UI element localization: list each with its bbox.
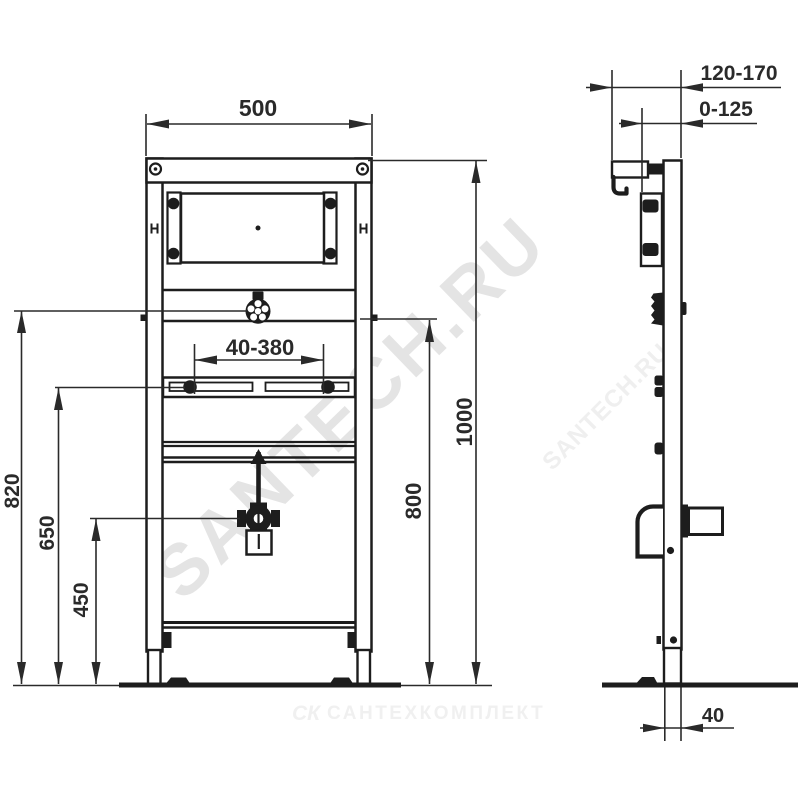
plate-bolt	[325, 198, 337, 210]
dim-label-adjust-range: 0-125	[699, 98, 753, 121]
bracket-bolt	[643, 200, 659, 213]
side-floor-line	[602, 683, 798, 688]
frame-top-bar	[147, 159, 372, 183]
dim-label-left-top-height: 820	[1, 473, 24, 508]
bottom-crossbar	[163, 623, 355, 628]
dim-label-slot-height: 650	[36, 515, 59, 550]
frame-feet	[13, 632, 492, 688]
profile-bolt	[655, 376, 664, 386]
dim-label-width: 500	[239, 95, 277, 121]
foot-clamp-right	[348, 632, 356, 648]
dim-label-tap-height: 800	[401, 483, 426, 520]
slot-right	[266, 383, 349, 392]
slot-rail	[163, 378, 355, 398]
plate-bolt	[168, 198, 180, 210]
dim-label-drain-height: 450	[70, 582, 93, 617]
washbasin-frame-drawing: SANTECH.RU SANTECH.RU	[0, 0, 800, 800]
footer-logo: СК	[292, 702, 322, 725]
tap-rail	[141, 290, 378, 324]
dim-label-foot-depth: 40	[702, 705, 724, 727]
mounting-plate	[168, 193, 337, 264]
profile-channel	[664, 161, 682, 650]
serrated-clip	[651, 293, 663, 326]
side-view	[602, 161, 798, 688]
plate-bolt	[168, 248, 180, 260]
side-foot	[602, 636, 798, 688]
washbasin-hook-bracket	[612, 162, 664, 194]
base-plate	[119, 683, 401, 688]
foot-right	[358, 650, 371, 684]
fixing-bracket-plate	[641, 194, 662, 267]
foot-clamp-left	[164, 632, 172, 648]
dim-foot-40: 40	[640, 688, 734, 742]
profile-bolt	[655, 443, 664, 455]
footer-company-name: САНТЕХКОМПЛЕКТ	[327, 703, 545, 724]
frame-right-rail	[356, 159, 372, 652]
profile-back-stud	[682, 302, 687, 315]
profile-bolt	[655, 387, 664, 397]
tap-valve-wheel	[246, 292, 271, 324]
plate-bolt	[325, 248, 337, 260]
watermark-diagonal-small: SANTECH.RU	[537, 338, 674, 475]
bracket-bolt	[643, 243, 659, 256]
plate-center-mark	[256, 226, 261, 231]
dim-label-overall-height: 1000	[452, 398, 477, 447]
technical-drawing-page: SANTECH.RU SANTECH.RU	[0, 0, 800, 800]
dim-label-wall-offset: 120-170	[700, 62, 777, 85]
dim-width-500: 500	[146, 95, 372, 156]
foot-lock-screw	[670, 636, 677, 643]
foot-left	[148, 650, 161, 684]
footer-watermark: СК САНТЕХКОМПЛЕКТ	[292, 702, 545, 725]
frame-left-rail	[147, 159, 163, 652]
dim-label-slot-range: 40-380	[226, 335, 295, 360]
wall-bracket	[681, 505, 723, 538]
